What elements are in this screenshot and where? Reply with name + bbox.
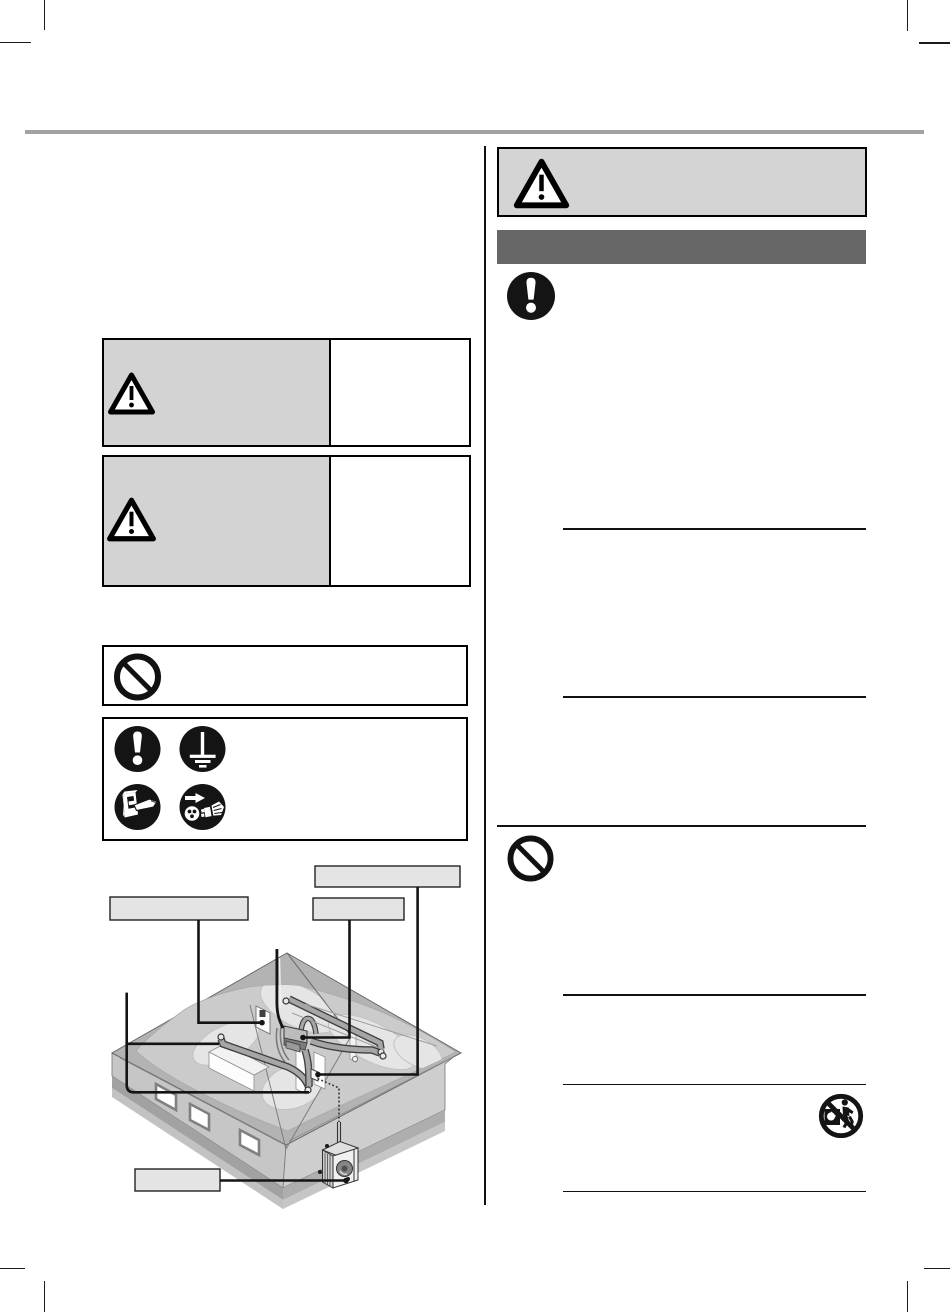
svg-text:OFF: OFF (126, 812, 135, 817)
